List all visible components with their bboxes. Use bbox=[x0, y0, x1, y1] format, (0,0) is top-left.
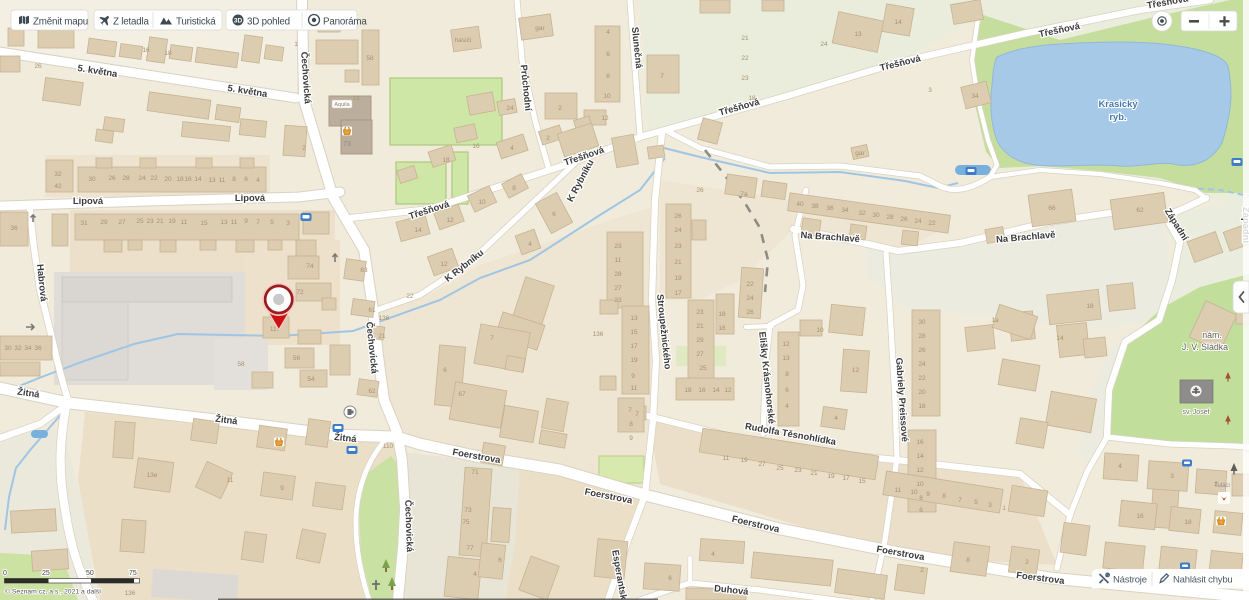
svg-text:2: 2 bbox=[920, 567, 924, 574]
svg-text:22: 22 bbox=[406, 293, 414, 300]
svg-text:27: 27 bbox=[696, 351, 704, 358]
svg-text:18: 18 bbox=[176, 176, 184, 183]
svg-text:19: 19 bbox=[674, 275, 682, 282]
svg-text:66: 66 bbox=[1048, 205, 1056, 212]
svg-text:10: 10 bbox=[816, 327, 824, 334]
svg-text:nám.: nám. bbox=[1202, 330, 1222, 340]
svg-text:14: 14 bbox=[194, 176, 202, 183]
svg-text:61: 61 bbox=[368, 307, 376, 314]
svg-text:7: 7 bbox=[256, 219, 260, 226]
svg-text:14: 14 bbox=[1056, 335, 1064, 342]
svg-text:11: 11 bbox=[723, 455, 730, 462]
svg-text:11: 11 bbox=[181, 219, 188, 226]
svg-text:4: 4 bbox=[711, 551, 715, 558]
svg-text:J. V. Sládka: J. V. Sládka bbox=[1182, 342, 1228, 352]
svg-text:24: 24 bbox=[914, 218, 922, 225]
svg-text:16: 16 bbox=[718, 325, 726, 332]
svg-text:58: 58 bbox=[366, 55, 374, 62]
svg-text:11: 11 bbox=[631, 385, 638, 392]
svg-text:25: 25 bbox=[776, 465, 784, 472]
svg-text:18: 18 bbox=[684, 387, 692, 394]
svg-text:26: 26 bbox=[900, 216, 908, 223]
svg-text:11: 11 bbox=[895, 487, 902, 494]
svg-text:6: 6 bbox=[785, 387, 789, 394]
svg-text:24: 24 bbox=[820, 41, 828, 48]
svg-text:1: 1 bbox=[1002, 505, 1006, 512]
svg-text:27: 27 bbox=[118, 219, 126, 226]
svg-text:34: 34 bbox=[841, 207, 849, 214]
svg-text:54: 54 bbox=[307, 376, 315, 383]
svg-text:8: 8 bbox=[942, 493, 946, 500]
svg-text:9: 9 bbox=[926, 491, 930, 498]
svg-text:7: 7 bbox=[958, 497, 962, 504]
svg-text:23: 23 bbox=[696, 309, 704, 316]
svg-text:28: 28 bbox=[122, 175, 130, 182]
svg-text:6: 6 bbox=[498, 557, 502, 564]
svg-text:74: 74 bbox=[306, 263, 314, 270]
svg-text:16: 16 bbox=[698, 387, 706, 394]
svg-text:72: 72 bbox=[296, 289, 304, 296]
svg-text:12: 12 bbox=[852, 367, 860, 374]
svg-text:28: 28 bbox=[918, 333, 926, 340]
svg-text:7: 7 bbox=[490, 335, 494, 342]
svg-text:24: 24 bbox=[746, 295, 754, 302]
svg-text:22: 22 bbox=[150, 175, 158, 182]
svg-text:5: 5 bbox=[270, 219, 274, 226]
svg-text:22: 22 bbox=[741, 55, 749, 62]
svg-text:Panoráma: Panoráma bbox=[323, 17, 367, 28]
svg-text:23: 23 bbox=[741, 75, 749, 82]
svg-text:21: 21 bbox=[741, 35, 749, 42]
svg-text:67: 67 bbox=[458, 391, 466, 398]
svg-text:30: 30 bbox=[4, 345, 12, 352]
svg-text:27: 27 bbox=[758, 461, 766, 468]
svg-text:18: 18 bbox=[1184, 519, 1192, 526]
svg-text:15: 15 bbox=[200, 220, 208, 227]
svg-text:18: 18 bbox=[718, 311, 726, 318]
svg-text:34: 34 bbox=[24, 345, 32, 352]
svg-text:Čechovická: Čechovická bbox=[403, 500, 416, 553]
svg-text:8: 8 bbox=[629, 421, 633, 428]
svg-text:Aquila: Aquila bbox=[334, 102, 350, 108]
svg-text:75: 75 bbox=[129, 570, 137, 577]
svg-text:32: 32 bbox=[14, 345, 22, 352]
svg-text:22: 22 bbox=[928, 220, 936, 227]
svg-text:26: 26 bbox=[696, 187, 704, 194]
svg-text:Nástroje: Nástroje bbox=[1113, 575, 1147, 586]
svg-text:19: 19 bbox=[827, 473, 835, 480]
svg-text:36: 36 bbox=[826, 205, 834, 212]
svg-text:17: 17 bbox=[674, 290, 682, 297]
svg-text:7: 7 bbox=[628, 407, 632, 414]
svg-text:sv. Josef: sv. Josef bbox=[1182, 409, 1209, 416]
svg-text:20: 20 bbox=[918, 389, 926, 396]
svg-text:62: 62 bbox=[368, 388, 376, 395]
svg-text:10: 10 bbox=[603, 93, 611, 100]
svg-text:21: 21 bbox=[156, 218, 164, 225]
svg-text:16: 16 bbox=[472, 143, 480, 150]
svg-text:21: 21 bbox=[810, 470, 818, 477]
svg-text:16: 16 bbox=[184, 176, 192, 183]
svg-text:13: 13 bbox=[630, 315, 638, 322]
svg-text:27: 27 bbox=[614, 285, 622, 292]
svg-text:17: 17 bbox=[842, 475, 850, 482]
svg-text:12: 12 bbox=[440, 261, 448, 268]
svg-text:gar: gar bbox=[855, 150, 865, 157]
svg-text:3: 3 bbox=[286, 220, 290, 227]
svg-text:6: 6 bbox=[244, 176, 248, 183]
svg-text:16: 16 bbox=[1136, 513, 1144, 520]
svg-text:18: 18 bbox=[918, 403, 926, 410]
svg-text:26: 26 bbox=[108, 175, 116, 182]
svg-text:12: 12 bbox=[446, 217, 454, 224]
svg-text:23: 23 bbox=[614, 243, 622, 250]
svg-text:12: 12 bbox=[782, 341, 790, 348]
svg-text:ryb.: ryb. bbox=[1109, 111, 1126, 122]
svg-text:4: 4 bbox=[528, 241, 532, 248]
svg-text:3: 3 bbox=[988, 502, 992, 509]
svg-text:8: 8 bbox=[966, 557, 970, 564]
svg-text:7: 7 bbox=[660, 73, 664, 80]
svg-text:6: 6 bbox=[919, 507, 923, 514]
svg-text:12: 12 bbox=[601, 115, 609, 122]
svg-text:Z letadla: Z letadla bbox=[113, 17, 150, 28]
svg-text:24: 24 bbox=[918, 361, 926, 368]
svg-text:1: 1 bbox=[294, 41, 298, 48]
svg-text:18: 18 bbox=[442, 157, 450, 164]
svg-text:19: 19 bbox=[168, 218, 176, 225]
svg-text:6: 6 bbox=[443, 367, 447, 374]
svg-text:31: 31 bbox=[80, 220, 88, 227]
svg-text:110: 110 bbox=[383, 443, 394, 450]
svg-text:32: 32 bbox=[54, 171, 62, 178]
svg-text:71: 71 bbox=[471, 469, 479, 476]
svg-text:© Seznam.cz, a.s., 2021 a dalš: © Seznam.cz, a.s., 2021 a další bbox=[5, 588, 101, 596]
svg-text:12: 12 bbox=[724, 387, 732, 394]
svg-text:32: 32 bbox=[858, 210, 866, 217]
svg-text:56: 56 bbox=[293, 355, 301, 362]
svg-text:136: 136 bbox=[593, 331, 604, 338]
svg-text:21: 21 bbox=[696, 323, 704, 330]
svg-text:21: 21 bbox=[674, 259, 682, 266]
svg-text:Lipová: Lipová bbox=[235, 192, 266, 203]
svg-text:2: 2 bbox=[302, 145, 306, 152]
svg-text:14: 14 bbox=[414, 227, 422, 234]
svg-text:25: 25 bbox=[42, 570, 50, 577]
svg-text:25: 25 bbox=[136, 218, 144, 225]
svg-text:62: 62 bbox=[1136, 207, 1144, 214]
svg-text:34: 34 bbox=[971, 93, 979, 100]
svg-text:4: 4 bbox=[510, 145, 514, 152]
svg-text:30: 30 bbox=[88, 176, 96, 183]
svg-text:22: 22 bbox=[746, 281, 754, 288]
svg-text:13e: 13e bbox=[147, 472, 158, 479]
svg-text:73: 73 bbox=[464, 507, 472, 514]
svg-text:10: 10 bbox=[916, 481, 924, 488]
svg-text:hasiči: hasiči bbox=[455, 37, 472, 44]
svg-text:23: 23 bbox=[794, 467, 802, 474]
svg-text:13: 13 bbox=[352, 95, 360, 102]
svg-text:18: 18 bbox=[1086, 303, 1094, 310]
svg-text:40: 40 bbox=[796, 201, 804, 208]
svg-text:73: 73 bbox=[343, 141, 351, 148]
svg-text:2: 2 bbox=[558, 105, 562, 112]
svg-text:22: 22 bbox=[918, 375, 926, 382]
svg-text:15: 15 bbox=[858, 478, 866, 485]
svg-text:18: 18 bbox=[748, 95, 756, 102]
svg-text:23: 23 bbox=[674, 243, 682, 250]
svg-text:8: 8 bbox=[232, 176, 236, 183]
svg-text:6: 6 bbox=[668, 575, 672, 582]
svg-text:4: 4 bbox=[1118, 463, 1122, 470]
svg-text:30: 30 bbox=[872, 212, 880, 219]
svg-text:14: 14 bbox=[712, 387, 720, 394]
svg-text:23: 23 bbox=[614, 297, 622, 304]
svg-text:24: 24 bbox=[674, 227, 682, 234]
svg-text:29: 29 bbox=[696, 337, 704, 344]
svg-text:36: 36 bbox=[10, 225, 18, 232]
svg-text:75: 75 bbox=[462, 519, 470, 526]
svg-text:gar: gar bbox=[535, 25, 545, 32]
svg-text:2: 2 bbox=[1025, 559, 1029, 566]
svg-text:5: 5 bbox=[974, 499, 978, 506]
svg-text:26: 26 bbox=[34, 63, 42, 70]
svg-text:23: 23 bbox=[146, 218, 154, 225]
svg-text:13: 13 bbox=[220, 219, 228, 226]
svg-text:4: 4 bbox=[256, 177, 260, 184]
svg-text:11: 11 bbox=[231, 219, 238, 226]
svg-text:0: 0 bbox=[3, 570, 7, 577]
svg-text:Turistická: Turistická bbox=[176, 17, 216, 28]
svg-text:Změnit mapu: Změnit mapu bbox=[33, 17, 88, 28]
svg-text:10: 10 bbox=[910, 489, 918, 496]
svg-text:11: 11 bbox=[227, 477, 234, 484]
svg-text:3: 3 bbox=[1170, 473, 1174, 480]
svg-text:36: 36 bbox=[34, 345, 42, 352]
svg-text:18: 18 bbox=[164, 50, 172, 57]
svg-text:7: 7 bbox=[635, 411, 639, 418]
svg-text:7a: 7a bbox=[740, 191, 748, 198]
svg-text:Tuláci: Tuláci bbox=[1214, 483, 1230, 489]
svg-text:16: 16 bbox=[916, 439, 924, 446]
svg-text:4: 4 bbox=[834, 415, 838, 422]
svg-text:14: 14 bbox=[894, 19, 902, 26]
svg-text:16: 16 bbox=[142, 47, 150, 54]
svg-text:58: 58 bbox=[237, 361, 245, 368]
svg-text:9: 9 bbox=[631, 373, 635, 380]
svg-text:9: 9 bbox=[244, 218, 248, 225]
svg-text:13: 13 bbox=[854, 31, 862, 38]
svg-text:4: 4 bbox=[785, 403, 789, 410]
svg-text:13: 13 bbox=[782, 355, 790, 362]
svg-text:8: 8 bbox=[606, 73, 610, 80]
svg-text:19: 19 bbox=[740, 457, 748, 464]
svg-text:26: 26 bbox=[746, 309, 754, 316]
svg-text:28: 28 bbox=[614, 271, 622, 278]
svg-text:3D: 3D bbox=[234, 17, 243, 24]
svg-text:13: 13 bbox=[208, 177, 216, 184]
svg-text:29: 29 bbox=[100, 219, 108, 226]
svg-text:8: 8 bbox=[785, 371, 789, 378]
svg-text:11: 11 bbox=[219, 177, 226, 184]
svg-text:10: 10 bbox=[478, 199, 486, 206]
svg-text:3D pohled: 3D pohled bbox=[247, 17, 290, 28]
svg-text:19: 19 bbox=[630, 357, 638, 364]
svg-text:Krasický: Krasický bbox=[1098, 98, 1138, 109]
svg-text:4: 4 bbox=[606, 29, 610, 36]
svg-text:8: 8 bbox=[919, 495, 923, 502]
svg-text:21: 21 bbox=[378, 333, 386, 340]
svg-text:38: 38 bbox=[811, 203, 819, 210]
svg-text:50: 50 bbox=[86, 570, 94, 577]
svg-text:9: 9 bbox=[280, 485, 284, 492]
svg-text:14: 14 bbox=[916, 453, 924, 460]
svg-text:26: 26 bbox=[674, 213, 682, 220]
svg-text:6: 6 bbox=[606, 51, 610, 58]
svg-text:Lipová: Lipová bbox=[73, 195, 104, 206]
svg-text:2: 2 bbox=[546, 135, 550, 142]
svg-text:12: 12 bbox=[916, 467, 924, 474]
svg-text:20: 20 bbox=[164, 176, 172, 183]
svg-text:8: 8 bbox=[512, 185, 516, 192]
svg-text:42: 42 bbox=[54, 183, 62, 190]
svg-text:136: 136 bbox=[125, 590, 136, 597]
svg-text:4: 4 bbox=[473, 571, 477, 578]
svg-text:9: 9 bbox=[629, 435, 633, 442]
svg-text:30: 30 bbox=[918, 319, 926, 326]
svg-text:24: 24 bbox=[506, 105, 514, 112]
svg-text:63: 63 bbox=[360, 267, 368, 274]
svg-text:17: 17 bbox=[630, 343, 638, 350]
svg-text:11: 11 bbox=[615, 257, 622, 264]
svg-text:1a: 1a bbox=[991, 317, 999, 324]
svg-text:136: 136 bbox=[379, 315, 390, 322]
svg-text:24: 24 bbox=[138, 175, 146, 182]
svg-text:26: 26 bbox=[918, 347, 926, 354]
svg-text:15: 15 bbox=[630, 329, 638, 336]
svg-text:6: 6 bbox=[552, 211, 556, 218]
svg-text:3: 3 bbox=[928, 87, 932, 94]
svg-text:77: 77 bbox=[466, 545, 474, 552]
svg-text:25: 25 bbox=[699, 365, 707, 372]
svg-text:28: 28 bbox=[886, 214, 894, 221]
svg-text:Nahlásit chybu: Nahlásit chybu bbox=[1173, 575, 1233, 586]
